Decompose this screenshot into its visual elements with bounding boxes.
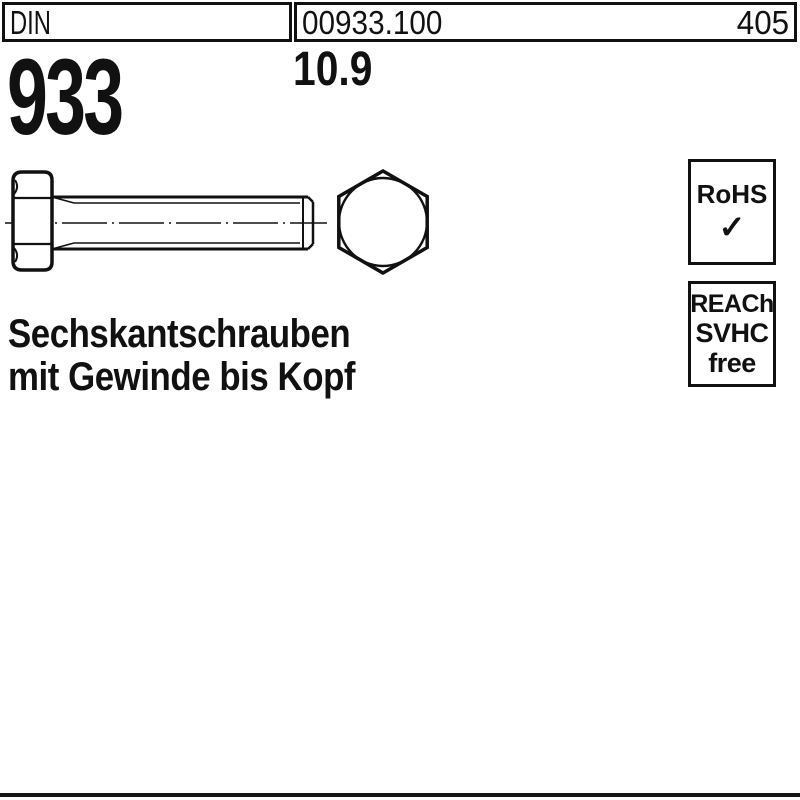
hex-head-front-outline [339, 171, 427, 273]
check-icon: ✓ [719, 211, 746, 243]
product-title-line1: Sechskantschrauben [8, 313, 355, 356]
standard-number: 933 [7, 43, 121, 151]
strength-class: 10.9 [293, 46, 372, 94]
end-chamfer-top [308, 197, 313, 202]
end-chamfer-bottom [308, 244, 313, 249]
bottom-rule [0, 793, 800, 797]
reach-label-line2: SVHC [695, 318, 768, 348]
din-label: DIN [10, 6, 51, 39]
hex-bolt-technical-drawing [0, 158, 460, 292]
catalog-page-number: 405 [737, 6, 789, 39]
article-header-box: 00933.100 405 [294, 2, 797, 42]
catalog-page: DIN 00933.100 405 933 10.9 [0, 0, 800, 800]
rohs-badge: RoHS ✓ [688, 159, 776, 265]
hex-head-outline [13, 172, 52, 270]
reach-label-line1: REACh [690, 290, 774, 318]
article-number: 00933.100 [302, 6, 442, 39]
rohs-label: RoHS [697, 181, 768, 208]
reach-badge: REACh SVHC free [688, 281, 776, 387]
reach-label-line3: free [708, 348, 756, 378]
product-title: Sechskantschrauben mit Gewinde bis Kopf [8, 313, 355, 399]
product-title-line2: mit Gewinde bis Kopf [8, 356, 355, 399]
